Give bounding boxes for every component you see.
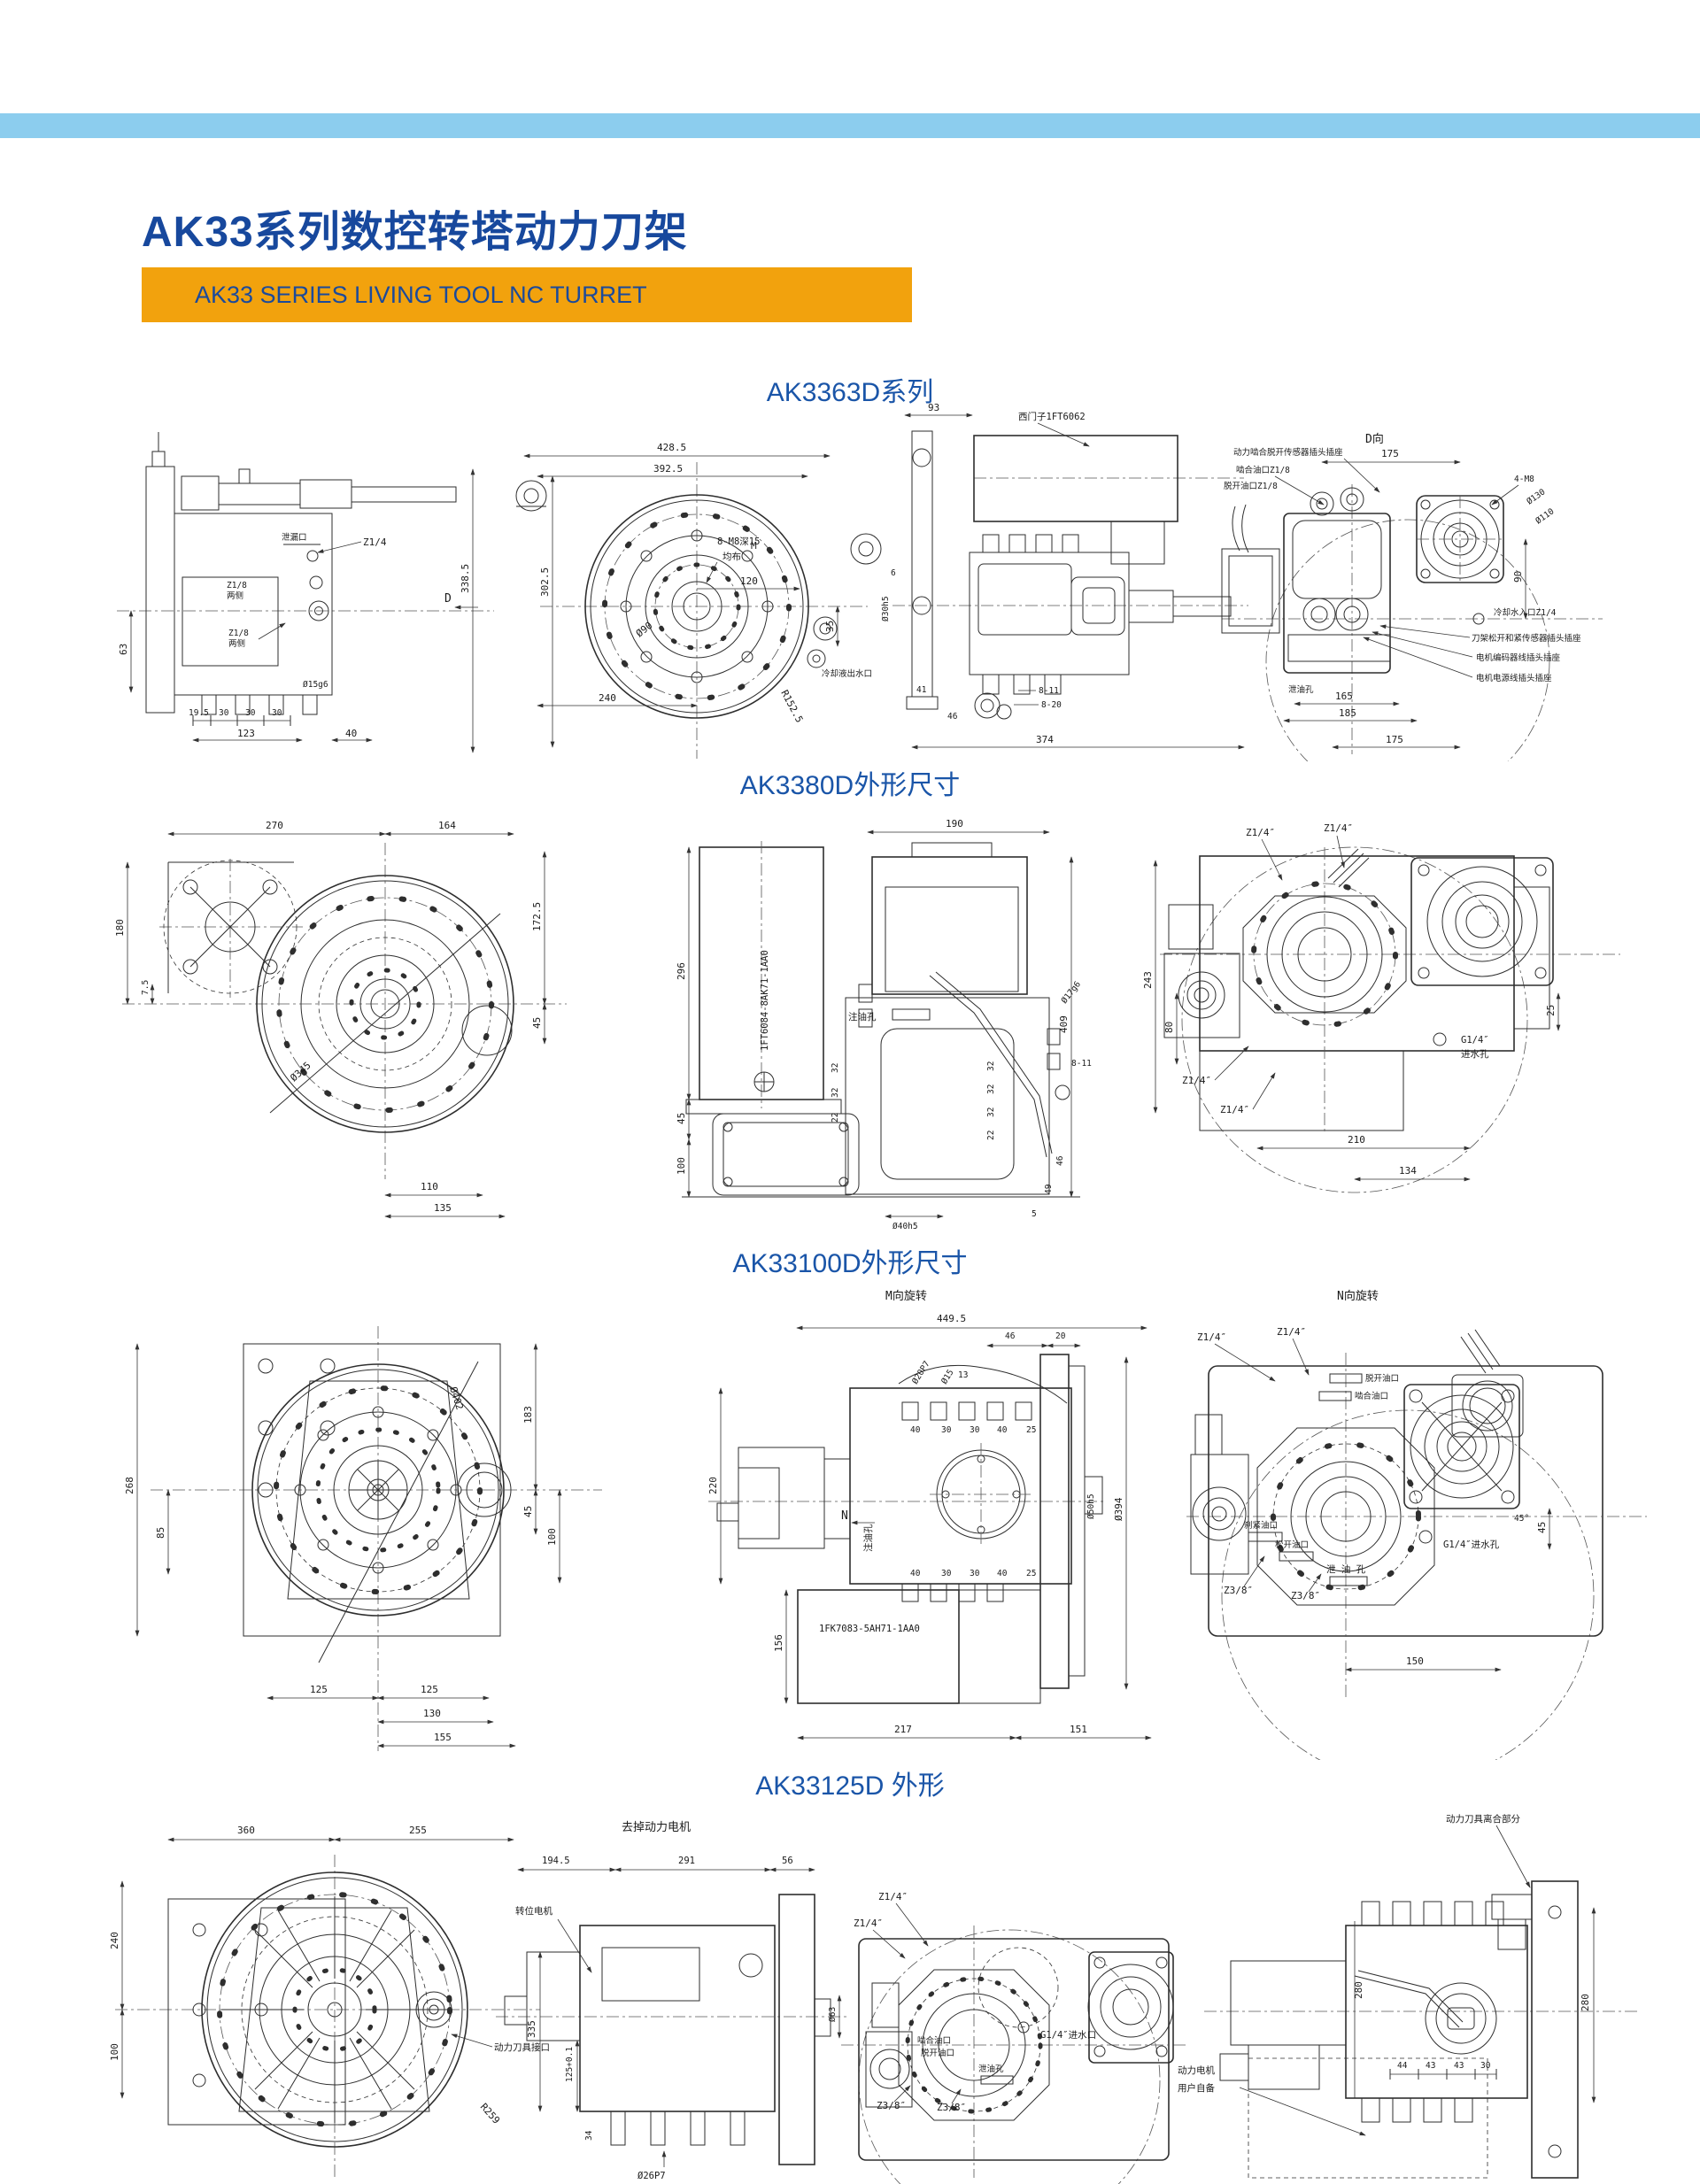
dim-label: 392.5 [653, 463, 683, 475]
view-ak33125d-top: Z1/4″ Z1/4″ G1/4″进水口 啮合油口 脱开油口 泄油孔 Z3/8″… [841, 1891, 1186, 2184]
dim-label: 45 [1536, 1522, 1548, 1533]
dim-label: 40 [910, 1569, 921, 1578]
dim-label: 41 [916, 685, 927, 695]
part-label: 1FK7083-5AH71-1AA0 [819, 1624, 920, 1634]
dim-label: 32 [986, 1084, 996, 1094]
dim-label: Ø90 [634, 620, 655, 639]
callout-label: 泄漏口 [282, 532, 307, 543]
dim-label: 8-20 [1041, 700, 1062, 710]
dim-label: 7.5 [141, 980, 151, 995]
view-label: M向旋转 [885, 1289, 927, 1303]
dim-label: 100 [109, 2043, 120, 2061]
dim-label: 449.5 [937, 1313, 966, 1324]
dim-label: 45 [676, 1113, 687, 1124]
callout-label: 冷却水入口Z1/4 [1494, 607, 1557, 618]
view-ak33100d-side: M向旋转 449.5 1FK7083-5AH71-1AA0 [707, 1289, 1151, 1738]
dim-label: 40 [345, 728, 357, 739]
view-ak33100d-front: Ø402 268 85 183 45 100 125 125 130 155 [124, 1326, 602, 1751]
drawing-row-ak3363d: 泄漏口 Z1/4 Z1/8 两侧 Z1/8 两侧 Ø15g6 63 19.5 3… [97, 400, 1620, 761]
dim-label: 183 [522, 1406, 534, 1424]
dim-label: Ø110 [1534, 506, 1556, 526]
callout-label: 脱开油口 [1365, 1373, 1399, 1384]
dim-label: 194.5 [542, 1856, 570, 1866]
dim-label: 180 [114, 919, 126, 937]
dim-label: 30 [272, 708, 282, 718]
dim-label: 93 [928, 402, 939, 413]
dim-label: 291 [678, 1856, 695, 1866]
dim-label: Ø20P7 [910, 1359, 931, 1385]
dim-label: 5 [1032, 1209, 1037, 1219]
dim-label: 56 [782, 1856, 793, 1866]
view-arrow-label: N [841, 1509, 848, 1523]
dim-label: 172.5 [531, 902, 543, 931]
dim-label: 190 [946, 818, 963, 830]
dim-label: 125+0.1 [565, 2047, 575, 2082]
dim-label: 302.5 [539, 567, 551, 597]
dim-label: 85 [155, 1527, 166, 1539]
callout-label: 啮合油口 [1355, 1391, 1388, 1401]
dim-label: 43 [1426, 2061, 1435, 2071]
callout-label: Z1/4″ [878, 1891, 908, 1902]
view-ak3363d-left-side: 泄漏口 Z1/4 Z1/8 两侧 Z1/8 两侧 Ø15g6 63 19.5 3… [117, 432, 494, 740]
view-arrow-label: D [444, 592, 452, 606]
dim-label: 30 [970, 1425, 980, 1435]
dim-label: 220 [707, 1477, 719, 1494]
callout-label: Z1/4″ [854, 1918, 883, 1929]
dim-label: 100 [676, 1157, 687, 1175]
dim-label: 25 [1026, 1569, 1036, 1578]
section-title-ak33125d: AK33125D 外形 [0, 1763, 1700, 1802]
callout-label: 脱开油口Z1/8 [1224, 481, 1278, 491]
dim-label: 270 [266, 820, 283, 831]
dim-label: R152.5 [778, 688, 805, 724]
dim-label: 46 [1055, 1155, 1065, 1166]
callout-label: Z3/8″ [1224, 1585, 1253, 1596]
view-ak3363d-rear: D向 动力啮合脱开传感器插头插座 啮合油口Z1/8 脱开油口Z1/8 [1222, 432, 1603, 761]
dim-label: 13 [958, 1370, 968, 1380]
dim-label: 125 [310, 1684, 328, 1695]
dim-label: 120 [740, 575, 758, 587]
callout-label: 两侧 [228, 638, 245, 649]
callout-label: Z1/4″ [1277, 1326, 1306, 1338]
dim-label: 90 [1512, 571, 1524, 583]
view-label: N向旋转 [1337, 1289, 1379, 1303]
dim-label: 338.5 [460, 564, 471, 593]
dim-label: 46 [1005, 1331, 1016, 1341]
view-ak33100d-top: N向旋转 Z1/4″ Z1/4″ 脱开油口 [1186, 1289, 1647, 1760]
dim-label: Ø40h5 [892, 1222, 918, 1231]
callout-label: 啮合油口 [917, 2035, 951, 2046]
dim-label: 30 [219, 708, 229, 718]
dim-label: 243 [1142, 971, 1154, 989]
callout-label: Z3/8″ [937, 2102, 966, 2113]
dim-label: 428.5 [657, 442, 686, 453]
callout-label: 西门子1FT6062 [1018, 411, 1086, 422]
callout-label: Z1/4″ [1324, 822, 1353, 834]
dim-label: 22 [831, 1113, 840, 1123]
dim-label: Ø15 [939, 1368, 955, 1385]
dim-label: 35 [824, 621, 836, 632]
view-ak33125d-side-nomotor: 去掉动力电机 194.5 291 56 转位电机 335 125+0.1 34 [496, 1821, 850, 2181]
callout-label: 动力刀具离合部分 [1446, 1813, 1520, 1825]
dim-label: 32 [986, 1107, 996, 1117]
dim-label: 125 [421, 1684, 438, 1695]
dim-label: 240 [599, 692, 616, 704]
callout-label: G1/4″进水口 [1040, 2030, 1096, 2041]
callout-label: 松开油口 [1275, 1540, 1309, 1550]
dim-label: 63 [118, 644, 129, 655]
callout-label: 转位电机 [515, 1905, 552, 1917]
callout-label: Z3/8″ [1291, 1590, 1320, 1601]
dim-label: 19.5 [189, 708, 209, 718]
dim-label: 30 [941, 1569, 952, 1578]
callout-label: 脱开油口 [921, 2048, 954, 2058]
dim-label: 25 [1026, 1425, 1036, 1435]
dim-label: 100 [546, 1528, 558, 1546]
callout-label: 刹紧油口 [1244, 1520, 1278, 1531]
dim-label: Ø394 [1113, 1497, 1124, 1521]
dim-label: 155 [434, 1732, 452, 1743]
callout-label: 两侧 [227, 590, 243, 601]
callout-label: 用户自备 [1178, 2082, 1215, 2094]
dim-label: Ø130 [1525, 487, 1547, 506]
callout-label: 冷却液出水口 [822, 668, 872, 679]
dim-label: 110 [421, 1181, 438, 1192]
callout-label: 刀架松开和紧传感器插头插座 [1472, 633, 1581, 644]
dim-label: 374 [1036, 734, 1054, 745]
dim-label: 156 [773, 1634, 784, 1652]
dim-label: 165 [1335, 691, 1353, 702]
dim-label: 40 [997, 1569, 1008, 1578]
view-arrow-label: M [751, 540, 757, 552]
drawing-row-ak3380d: 270 164 180 7.5 172.5 45 Ø345 110 135 1F… [97, 807, 1638, 1239]
catalog-page: AK33系列数控转塔动力刀架 AK33 SERIES LIVING TOOL N… [0, 0, 1700, 2184]
callout-label: 动力刀具接口 [494, 2041, 550, 2053]
callout-label: 啮合油口Z1/8 [1236, 465, 1290, 475]
dim-label: 45 [531, 1017, 543, 1029]
callout-label: 进水孔 [1461, 1048, 1489, 1060]
section-title-ak33100d: AK33100D外形尺寸 [0, 1241, 1700, 1280]
drawing-row-ak33125d: 360 255 240 100 R259 动力刀具接口 去掉动力电机 194.5… [80, 1806, 1673, 2184]
drawing-row-ak33100d: Ø402 268 85 183 45 100 125 125 130 155 M… [97, 1282, 1656, 1760]
callout-label: 电机编码器线插头插座 [1476, 652, 1561, 663]
view-ak3380d-top: Z1/4″ Z1/4″ 243 80 25 G1/4″ 进水孔 Z1/4″ Z1… [1142, 822, 1620, 1192]
dim-label: 280 [1353, 1981, 1364, 1999]
callout-label: 均布 [722, 552, 741, 562]
callout-label: G1/4″进水孔 [1443, 1539, 1500, 1550]
dim-label: Ø63 [828, 2007, 838, 2022]
dim-label: 32 [831, 1088, 840, 1098]
view-label: 去掉动力电机 [622, 1821, 691, 1834]
dim-label: 335 [526, 2020, 537, 2038]
dim-label: 255 [409, 1825, 427, 1836]
view-ak3363d-front: 428.5 392.5 338.5 302.5 240 8-M8深15 均布 1… [444, 442, 881, 759]
dim-label: 25 [1545, 1005, 1557, 1016]
dim-label: 22 [986, 1131, 996, 1140]
dim-label: 240 [109, 1932, 120, 1949]
dim-label: 20 [1055, 1331, 1066, 1341]
dim-label: 409 [1058, 1015, 1070, 1033]
dim-label: 185 [1339, 707, 1356, 719]
dim-label: 151 [1070, 1724, 1087, 1735]
subtitle-banner: AK33 SERIES LIVING TOOL NC TURRET [142, 267, 912, 322]
dim-label: 49 [1044, 1184, 1054, 1194]
dim-label: 45 [522, 1506, 534, 1517]
dim-label: 8-11 [1071, 1059, 1092, 1069]
callout-label: Z1/4″ [1220, 1104, 1249, 1115]
callout-label: Z1/4″ [1246, 827, 1275, 838]
dim-label: Ø15g6 [303, 680, 328, 690]
subtitle-text: AK33 SERIES LIVING TOOL NC TURRET [195, 282, 647, 309]
view-label: D向 [1365, 432, 1384, 446]
dim-label: Ø26P7 [637, 2171, 666, 2181]
dim-label: 46 [947, 712, 958, 722]
view-ak3380d-front: 270 164 180 7.5 172.5 45 Ø345 110 135 [114, 820, 567, 1216]
dim-label: 123 [237, 728, 255, 739]
callout-label: 泄油孔 [1288, 684, 1314, 695]
page-title: AK33系列数控转塔动力刀架 [142, 197, 688, 259]
callout-label: Z1/8 [227, 581, 247, 590]
dim-label: 34 [584, 2130, 594, 2141]
callout-label: 注油孔 [862, 1524, 874, 1552]
dim-label: 175 [1386, 734, 1403, 745]
dim-label: 30 [1480, 2061, 1491, 2071]
dim-label: 45° [1514, 1514, 1529, 1524]
dim-label: 175 [1381, 448, 1399, 459]
dim-label: 150 [1406, 1655, 1424, 1667]
dim-label: 217 [894, 1724, 912, 1735]
callout-label: 泄 油 孔 [1326, 1563, 1366, 1575]
callout-label: Z1/8 [228, 629, 249, 638]
dim-label: 32 [831, 1063, 840, 1073]
view-ak3363d-right-side: 西门子1FT6062 93 6 Ø30h5 41 46 8-11 8-20 [881, 402, 1248, 747]
callout-label: 注油孔 [848, 1011, 877, 1023]
dim-label: Ø30h5 [881, 596, 891, 621]
dim-label: 40 [997, 1425, 1008, 1435]
callout-label: 动力电机 [1178, 2064, 1215, 2076]
view-ak33125d-side-motor: 动力刀具离合部分 动力电机 用户自备 280 280 [1178, 1813, 1638, 2178]
callout-label: 泄油孔 [978, 2064, 1004, 2074]
dim-label: 280 [1580, 1994, 1591, 2011]
dim-label: 30 [941, 1425, 952, 1435]
dim-label: Ø50h5 [1086, 1493, 1096, 1519]
callout-label: Z1/4″ [1182, 1075, 1211, 1086]
dim-label: 30 [970, 1569, 980, 1578]
dim-label: 210 [1348, 1134, 1365, 1146]
callout-label: 动力啮合脱开传感器插头插座 [1233, 447, 1343, 458]
callout-label: G1/4″ [1461, 1035, 1489, 1046]
dim-label: 6 [891, 568, 896, 578]
view-ak3380d-side: 1FT6084-8AK71-1AA0 190 296 45 [676, 818, 1092, 1231]
callout-label: Z1/4″ [1197, 1331, 1226, 1343]
dim-label: 164 [438, 820, 456, 831]
dim-label: 30 [245, 708, 256, 718]
dim-label: 130 [423, 1708, 441, 1719]
dim-label: 296 [676, 962, 687, 980]
dim-label: 134 [1399, 1165, 1417, 1177]
part-label: 1FT6084-8AK71-1AA0 [760, 950, 770, 1051]
view-ak33125d-front: 360 255 240 100 R259 动力刀具接口 [109, 1825, 550, 2178]
dim-label: 80 [1163, 1022, 1175, 1033]
top-band [0, 113, 1700, 138]
dim-label: 268 [124, 1477, 135, 1494]
callout-label: Z3/8″ [877, 2100, 906, 2111]
callout-label: 电机电源线插头插座 [1476, 673, 1552, 683]
dim-label: 360 [237, 1825, 255, 1836]
section-title-ak3380d: AK3380D外形尺寸 [0, 763, 1700, 802]
dim-label: 32 [986, 1061, 996, 1071]
dim-label: R259 [478, 2101, 502, 2126]
dim-label: 40 [910, 1425, 921, 1435]
dim-label: 135 [434, 1202, 452, 1214]
callout-label: 4-M8 [1514, 475, 1534, 484]
dim-label: 44 [1397, 2061, 1408, 2071]
dim-label: 43 [1454, 2061, 1464, 2071]
callout-label: Z1/4 [363, 536, 387, 548]
dim-label: Ø345 [288, 1060, 313, 1084]
dim-label: 8-11 [1039, 686, 1059, 696]
